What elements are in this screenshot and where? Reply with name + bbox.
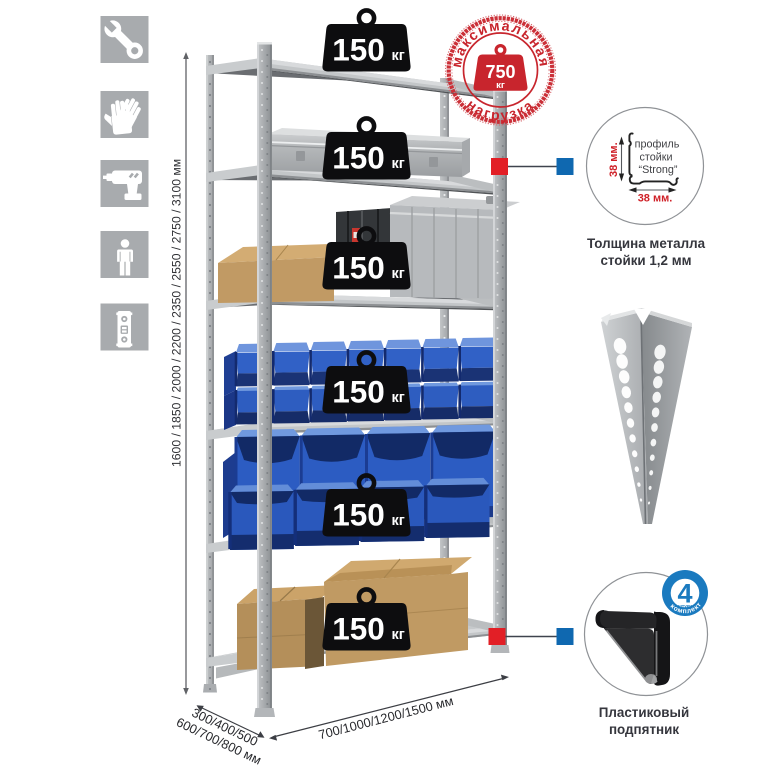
svg-text:150: 150 xyxy=(332,32,385,68)
svg-text:кг: кг xyxy=(392,48,405,64)
svg-text:150: 150 xyxy=(332,140,385,176)
svg-text:38 мм.: 38 мм. xyxy=(608,142,620,177)
svg-text:150: 150 xyxy=(332,374,385,410)
svg-text:Пластиковый: Пластиковый xyxy=(599,705,689,720)
svg-text:150: 150 xyxy=(332,497,385,533)
svg-text:150: 150 xyxy=(332,611,385,647)
svg-text:подпятник: подпятник xyxy=(609,722,679,737)
svg-text:кг: кг xyxy=(392,156,405,172)
svg-text:38 мм.: 38 мм. xyxy=(638,193,673,205)
svg-text:кг: кг xyxy=(496,80,505,91)
svg-text:Толщина металла: Толщина металла xyxy=(587,236,706,251)
svg-text:кг: кг xyxy=(392,513,405,529)
svg-text:150: 150 xyxy=(332,250,385,286)
svg-text:профиль: профиль xyxy=(635,139,680,151)
svg-text:“Strong”: “Strong” xyxy=(638,164,677,176)
svg-text:кг: кг xyxy=(392,266,405,282)
svg-text:стойки: стойки xyxy=(639,152,672,164)
svg-text:750: 750 xyxy=(485,62,515,82)
svg-text:1600 / 1850 / 2000 / 2200 / 23: 1600 / 1850 / 2000 / 2200 / 2350 / 2550 … xyxy=(170,159,184,467)
svg-text:кг: кг xyxy=(392,390,405,406)
svg-text:стойки 1,2 мм: стойки 1,2 мм xyxy=(600,253,691,268)
svg-text:кг: кг xyxy=(392,627,405,643)
